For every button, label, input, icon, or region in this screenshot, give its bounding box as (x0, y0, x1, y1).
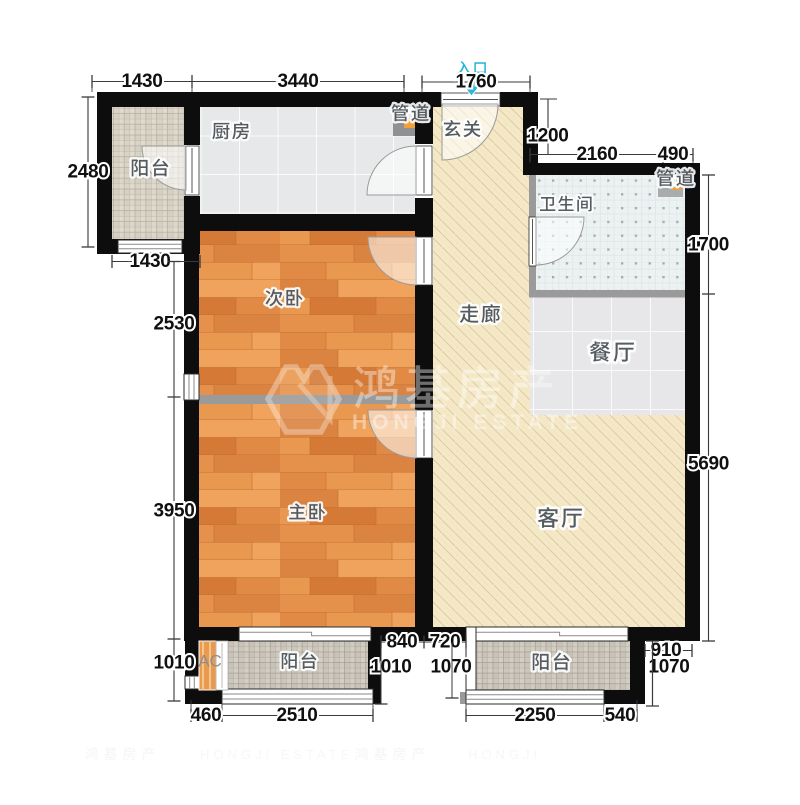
svg-text:1430: 1430 (129, 251, 170, 272)
svg-text:2250: 2250 (514, 705, 555, 726)
svg-text:1760: 1760 (455, 72, 496, 93)
svg-text:460: 460 (191, 705, 222, 726)
svg-text:1010: 1010 (153, 653, 194, 674)
svg-text:540: 540 (605, 705, 636, 726)
svg-text:1200: 1200 (527, 126, 568, 147)
svg-text:5690: 5690 (688, 454, 729, 475)
svg-text:1070: 1070 (648, 657, 689, 678)
svg-text:HONGJI: HONGJI (468, 747, 541, 762)
svg-text:3950: 3950 (153, 501, 194, 522)
svg-text:1430: 1430 (121, 71, 162, 92)
svg-text:HONGJI ESTATE: HONGJI ESTATE (200, 747, 353, 762)
svg-text:3440: 3440 (277, 71, 318, 92)
svg-text:2510: 2510 (276, 705, 317, 726)
svg-text:1700: 1700 (688, 235, 729, 256)
svg-text:HONGJI ESTATE: HONGJI ESTATE (352, 411, 583, 434)
svg-text:2480: 2480 (67, 162, 108, 183)
svg-text:1070: 1070 (430, 657, 471, 678)
svg-text:840: 840 (387, 632, 418, 653)
svg-text:490: 490 (658, 144, 689, 165)
svg-text:1010: 1010 (370, 657, 411, 678)
svg-text:720: 720 (430, 632, 461, 653)
svg-text:2530: 2530 (153, 314, 194, 335)
svg-text:AC: AC (198, 652, 222, 671)
svg-text:2160: 2160 (576, 144, 617, 165)
